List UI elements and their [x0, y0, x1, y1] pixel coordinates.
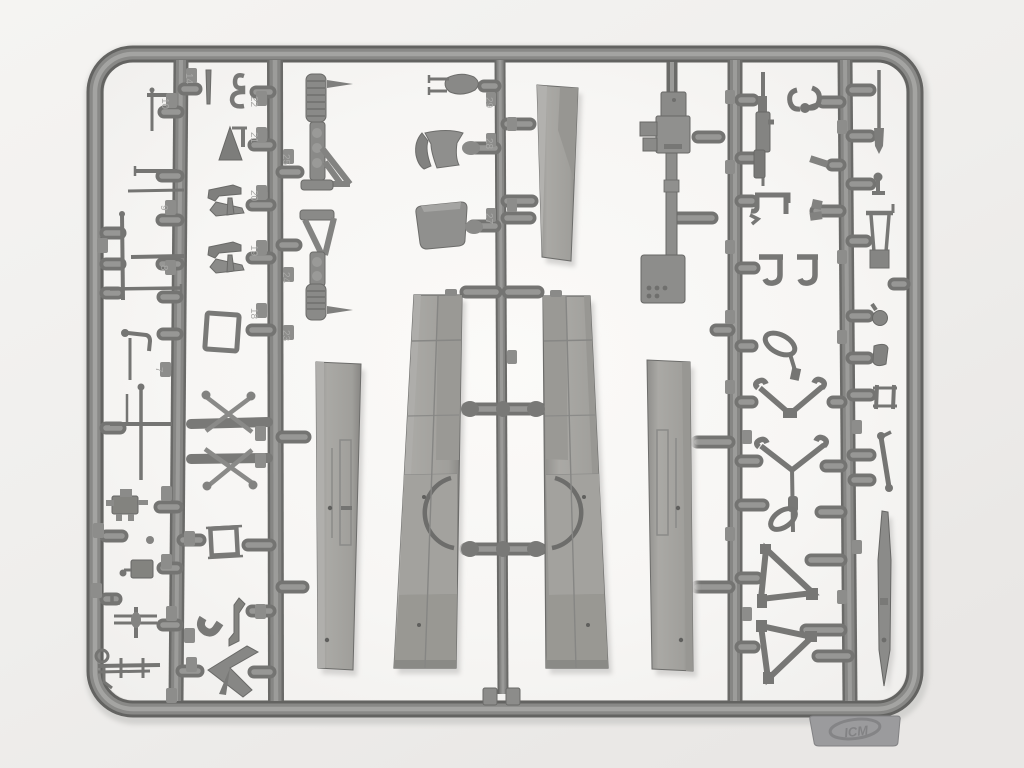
svg-text:19: 19 [248, 245, 259, 257]
svg-text:27: 27 [483, 213, 494, 225]
svg-text:22: 22 [248, 96, 259, 108]
svg-text:10: 10 [159, 98, 170, 110]
svg-text:9: 9 [158, 205, 169, 211]
svg-text:23: 23 [280, 330, 291, 342]
svg-text:24: 24 [280, 272, 291, 284]
svg-text:20: 20 [248, 190, 259, 202]
svg-text:ICM: ICM [843, 722, 870, 740]
svg-text:21: 21 [248, 132, 259, 144]
svg-text:8: 8 [158, 265, 169, 271]
svg-text:25: 25 [280, 154, 291, 166]
svg-text:29: 29 [483, 97, 494, 109]
svg-text:28: 28 [483, 138, 494, 150]
svg-text:7: 7 [153, 367, 164, 373]
svg-text:14: 14 [183, 73, 194, 85]
svg-text:18: 18 [248, 308, 259, 320]
